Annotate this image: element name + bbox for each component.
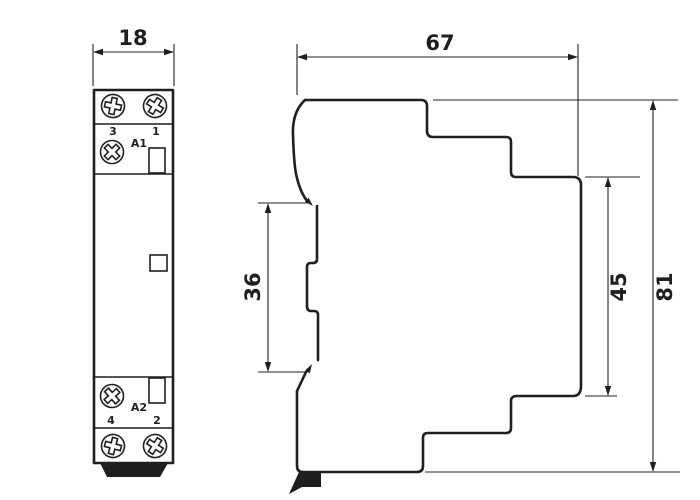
indicator-window: [149, 378, 165, 403]
screw-terminal-icon: [96, 136, 129, 169]
front-width-dimension: 18: [93, 26, 174, 86]
rail-dimension: 36: [241, 203, 310, 372]
terminal-label-2: 2: [153, 414, 161, 427]
dimensional-drawing-svg: 18 3 1 A1 A2 4 2: [0, 0, 700, 500]
din-rail-foot: [100, 463, 168, 477]
arrowhead-down: [605, 386, 611, 396]
arrowhead-right: [568, 54, 578, 60]
panel-dimension: 45: [585, 177, 640, 396]
terminal-label-a2: A2: [131, 401, 147, 414]
side-view: 67 36 45: [241, 31, 680, 494]
terminal-label-1: 1: [152, 125, 160, 138]
arrowhead-down: [650, 462, 656, 472]
arrowhead-left: [93, 49, 103, 55]
screw-terminal-icon: [139, 90, 171, 122]
arrowhead-right: [164, 49, 174, 55]
indicator-window: [149, 148, 165, 173]
side-depth-dimension: 67: [297, 31, 578, 176]
arrowhead-left: [297, 54, 307, 60]
side-profile-outline: [297, 100, 581, 472]
technical-drawing: 18 3 1 A1 A2 4 2: [0, 0, 700, 500]
screw-terminal-icon: [99, 92, 126, 119]
arrowhead-up: [650, 100, 656, 110]
front-view: 18 3 1 A1 A2 4 2: [93, 26, 174, 477]
dimension-height-label: 81: [653, 272, 677, 301]
terminal-label-4: 4: [107, 414, 115, 427]
dimension-rail-label: 36: [241, 272, 265, 301]
side-back-curve: [293, 100, 308, 202]
din-clip-foot: [289, 472, 321, 494]
screw-terminal-icon: [99, 432, 127, 460]
dimension-width-label: 18: [118, 26, 147, 50]
screw-terminal-icon: [96, 380, 128, 412]
height-dimension: 81: [425, 100, 680, 472]
side-clip-diagonal: [297, 372, 306, 391]
side-rail-notch: [307, 206, 318, 360]
screw-terminal-icon: [139, 430, 171, 462]
dimension-depth-label: 67: [425, 31, 454, 55]
arrowhead-up: [265, 203, 271, 213]
dimension-panel-label: 45: [607, 272, 631, 301]
terminal-label-3: 3: [109, 125, 117, 138]
indicator-window: [150, 255, 167, 271]
arrowhead-down: [265, 362, 271, 372]
arrowhead-up: [605, 177, 611, 187]
terminal-label-a1: A1: [131, 137, 147, 150]
